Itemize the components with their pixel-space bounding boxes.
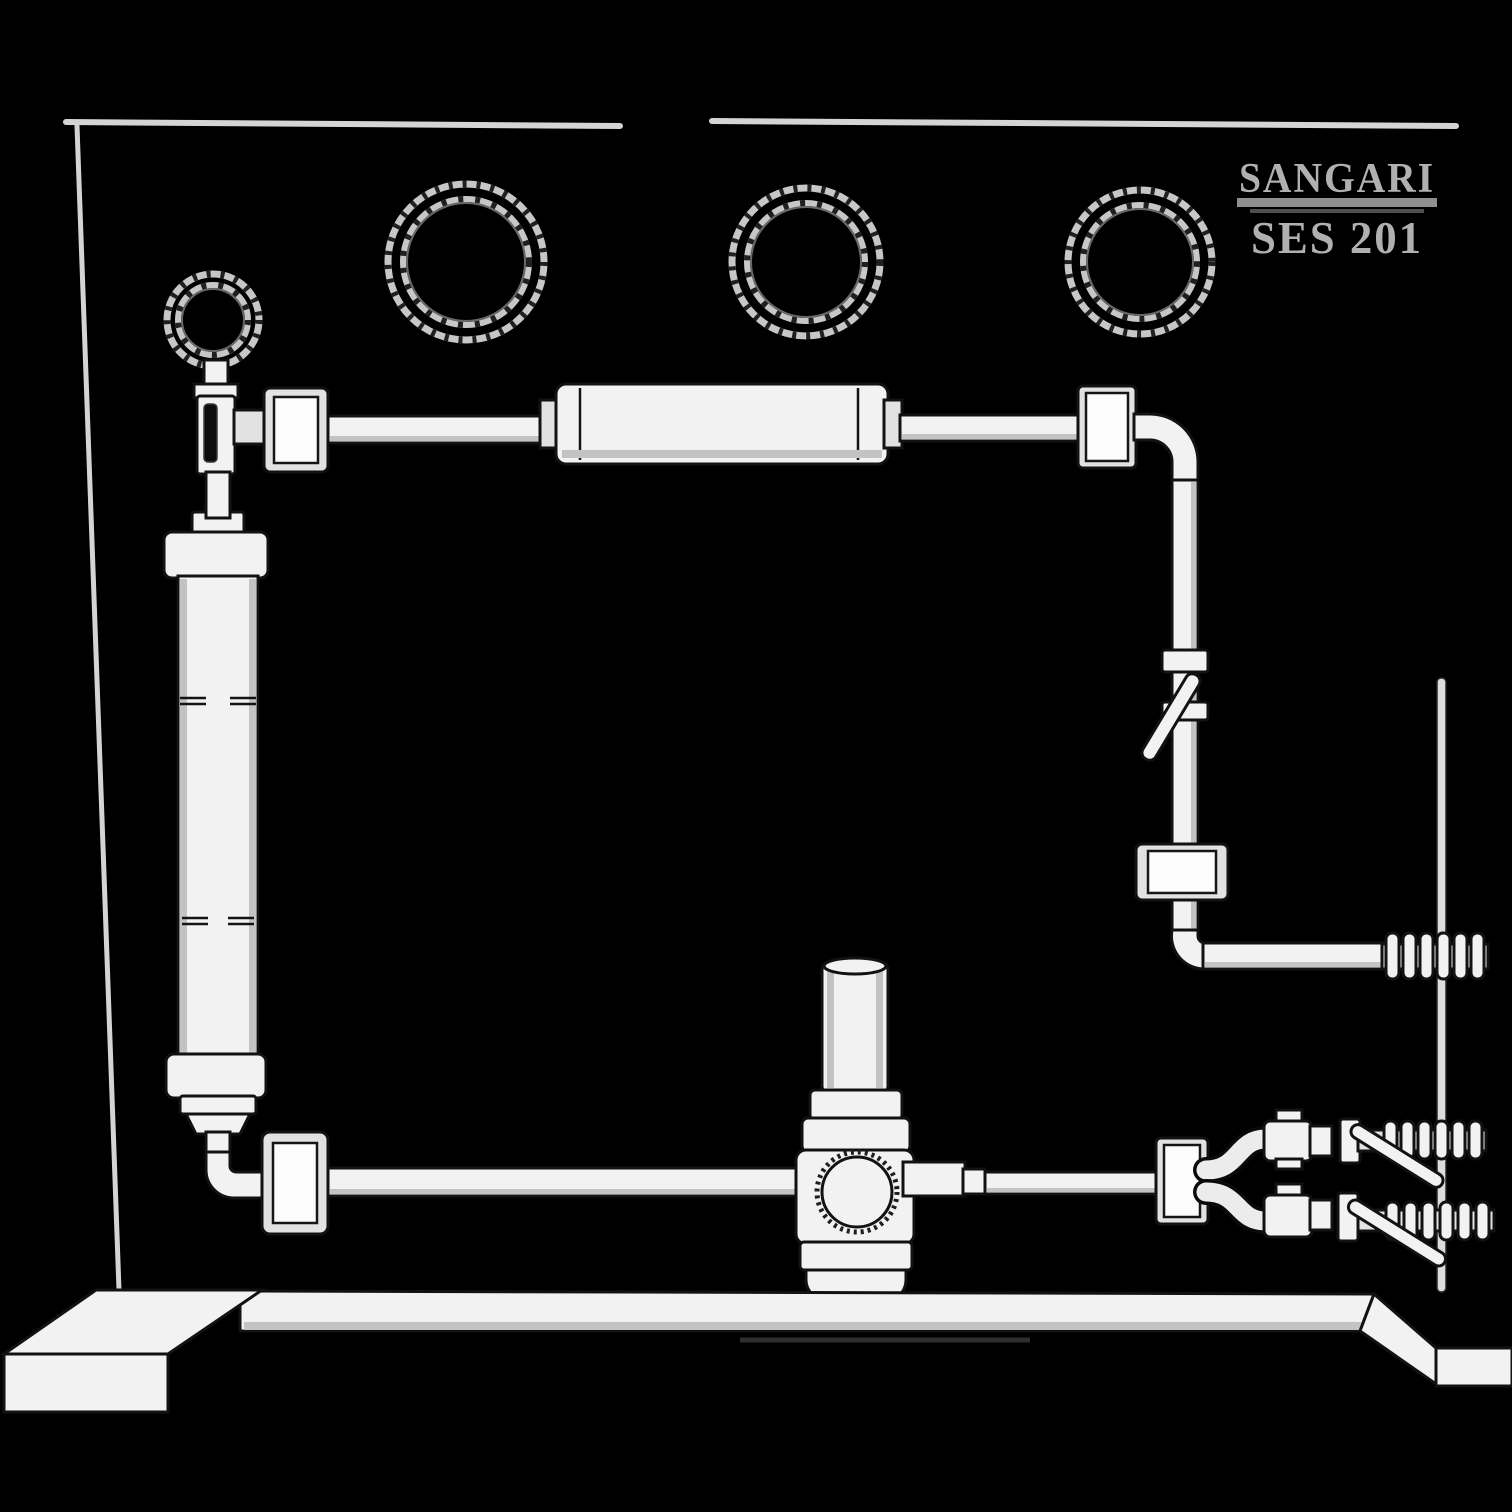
bottom-pipe-shade <box>330 1189 802 1194</box>
pressure-gauge-1 <box>388 184 544 340</box>
left-foot-front <box>4 1354 168 1412</box>
valve-coupling <box>1310 1126 1332 1156</box>
column-top-band <box>164 532 268 578</box>
right-support-rod <box>1437 678 1446 1292</box>
vertical-column-vessel <box>164 512 268 1154</box>
panel-fitting-top-right-face <box>1086 393 1128 461</box>
column-shade-right <box>249 579 256 1053</box>
column-body <box>178 576 258 1056</box>
hose-barb-rib <box>1476 1202 1489 1240</box>
valve-tab <box>1276 1159 1302 1169</box>
hose-barb-rib <box>1386 933 1399 979</box>
hose-barb-rib <box>1418 1121 1431 1159</box>
illustration-canvas: SANGARI SES 201 <box>0 0 1512 1512</box>
hose-barb-rib <box>1454 933 1467 979</box>
regulator-knob-top <box>824 958 886 974</box>
right-foot-front <box>1436 1348 1512 1386</box>
base-bar-shade <box>244 1322 1361 1330</box>
hose-barb-rib <box>1471 933 1484 979</box>
gauge-valve-downpipe <box>206 472 230 518</box>
gauge-stem <box>204 360 228 386</box>
hose-barb-rib <box>1422 1202 1435 1240</box>
regulator-dial <box>822 1157 892 1227</box>
panel-fitting-bottom-right-face <box>1164 1145 1200 1217</box>
hose-barb-rib <box>1420 933 1433 979</box>
regulator-collar <box>810 1090 902 1120</box>
right-valve-coupling-upper <box>1162 650 1208 672</box>
hose-barb-rib <box>1452 1121 1465 1159</box>
valve-coupling <box>1310 1200 1332 1230</box>
column-bottom-plate <box>180 1096 256 1114</box>
column-shade-left <box>180 579 187 1053</box>
pressure-gauge-2 <box>732 188 880 336</box>
hose-barb-rib <box>1437 933 1450 979</box>
panel-fitting-bottom-left-face <box>273 1143 317 1223</box>
valve-body <box>1264 1195 1312 1237</box>
pressure-gauge-small-left <box>167 274 259 366</box>
hose-barb-rib <box>1469 1121 1482 1159</box>
hose-barb-rib <box>1458 1202 1471 1240</box>
right-horizontal-pipe-shade <box>1205 962 1386 967</box>
top-pipe-left-shade <box>330 436 544 441</box>
bottom-pipe-right-shade <box>987 1188 1158 1192</box>
hose-barb-rib <box>1435 1121 1448 1159</box>
regulator-knob-shade-right <box>876 970 883 1088</box>
branding: SANGARI SES 201 <box>1237 156 1437 263</box>
apparatus-drawing: SANGARI SES 201 <box>0 0 1512 1512</box>
gauge-face <box>1087 209 1193 315</box>
top-pipe-right-shade <box>902 434 1080 439</box>
valve-body <box>1264 1121 1312 1161</box>
hose-barb-rib <box>1440 1202 1453 1240</box>
brand-underline <box>1237 198 1437 207</box>
frame-top-left-segment <box>66 122 620 126</box>
gauge-face <box>407 203 525 321</box>
brand-name: SANGARI <box>1239 156 1435 202</box>
panel-fitting-right-face <box>1148 851 1216 893</box>
hose-barb-rib <box>1403 933 1416 979</box>
gauge-face <box>182 289 244 351</box>
regulator-outlet-step <box>963 1169 985 1194</box>
panel-fitting-top-left-face <box>274 397 318 463</box>
cylinder-shade <box>562 450 882 458</box>
model-number: SES 201 <box>1251 212 1423 263</box>
gauge-face <box>751 207 861 317</box>
regulator-flange <box>802 1118 910 1152</box>
pressure-gauge-3 <box>1068 190 1212 334</box>
gauge-valve-slot <box>204 404 217 462</box>
regulator-lower-band <box>800 1242 912 1270</box>
regulator-knob-shade-left <box>827 970 834 1088</box>
column-bottom-flange <box>166 1054 266 1098</box>
regulator-outlet-stub <box>903 1162 965 1196</box>
